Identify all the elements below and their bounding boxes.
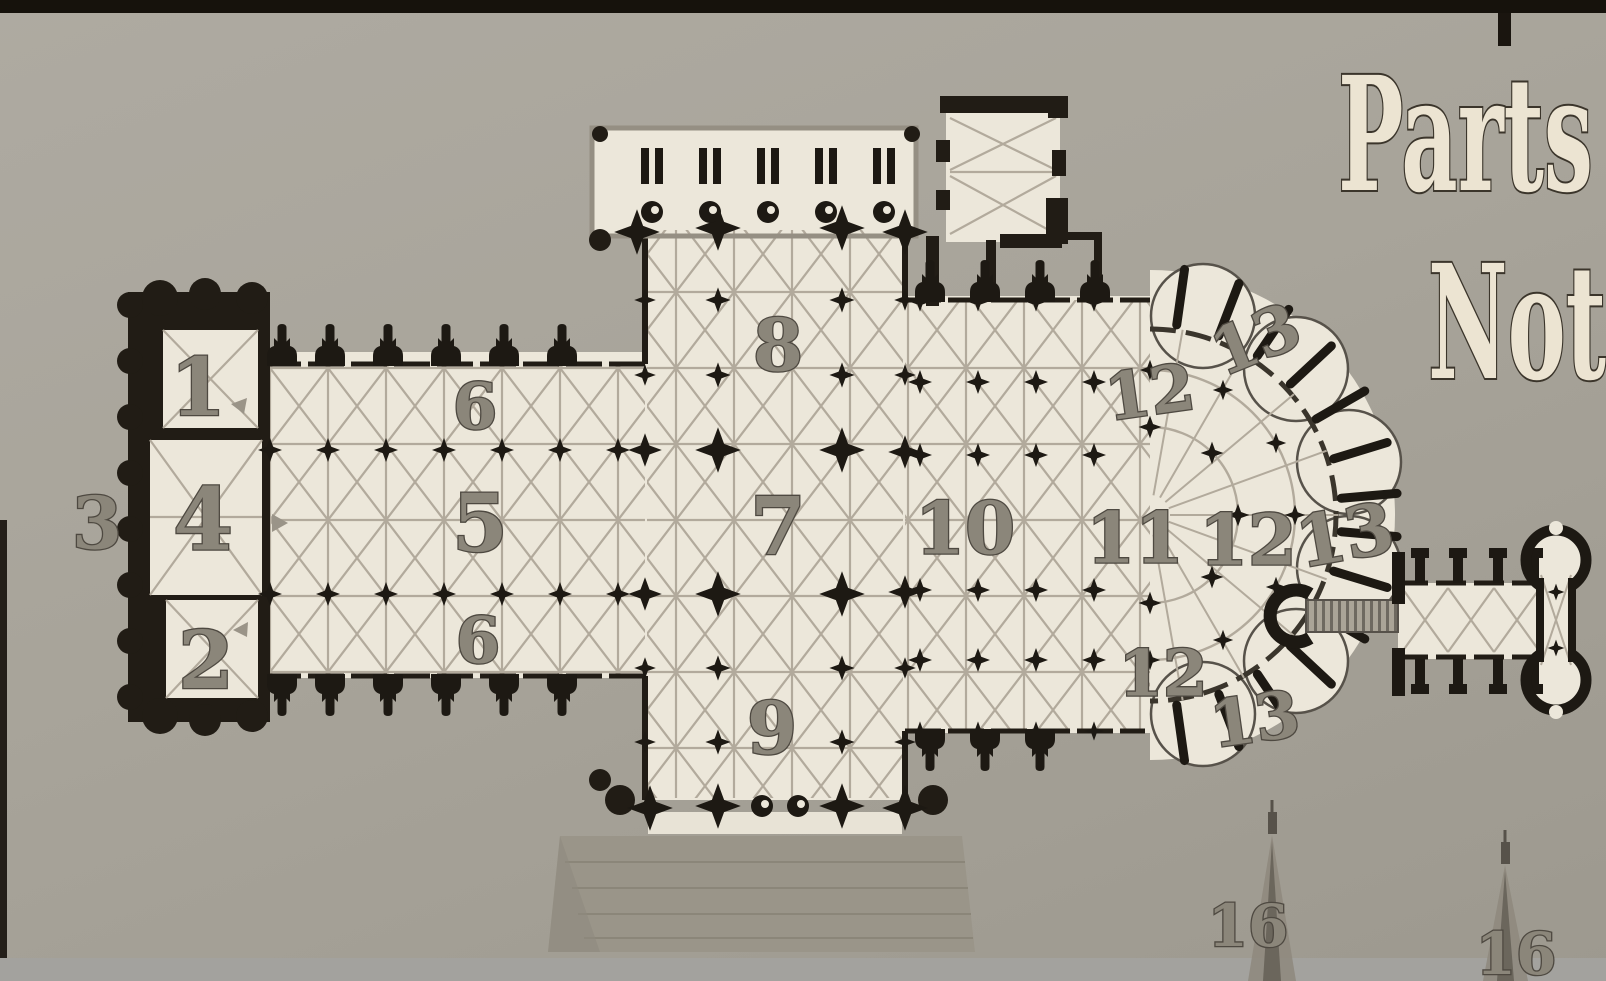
part-label: 13 [1206, 677, 1305, 764]
part-label: 5 [452, 476, 508, 570]
part-label: 16 [1208, 892, 1289, 960]
heading-line1: Parts [1338, 43, 1593, 228]
part-label: 6 [453, 370, 498, 445]
cathedral-floor-plan: 123456678910111212121313131616 [72, 96, 1586, 981]
part-label: 7 [750, 479, 806, 573]
photographed-page: 123456678910111212121313131616 Parts Not [0, 0, 1606, 981]
photo-frame-left [0, 520, 7, 981]
part-label: 11 [1086, 497, 1183, 580]
part-label: 10 [915, 486, 1015, 571]
part-label: 12 [1199, 499, 1296, 582]
part-label: 1 [170, 340, 226, 434]
part-label: 13 [1290, 486, 1400, 585]
part-label: 16 [1476, 920, 1557, 981]
part-label: 12 [1101, 350, 1200, 437]
photo-frame-top [0, 0, 1606, 13]
part-label: 12 [1118, 637, 1207, 712]
part-label: 9 [747, 686, 797, 771]
photo-bottom-band [0, 958, 1606, 981]
part-label: 8 [753, 303, 803, 388]
heading-line2: Not [1428, 231, 1606, 416]
part-label: 4 [173, 470, 233, 571]
part-label: 6 [456, 604, 501, 679]
part-label: 2 [178, 613, 234, 707]
part-label: 3 [72, 481, 122, 566]
photo-frame-nick [1498, 13, 1511, 46]
